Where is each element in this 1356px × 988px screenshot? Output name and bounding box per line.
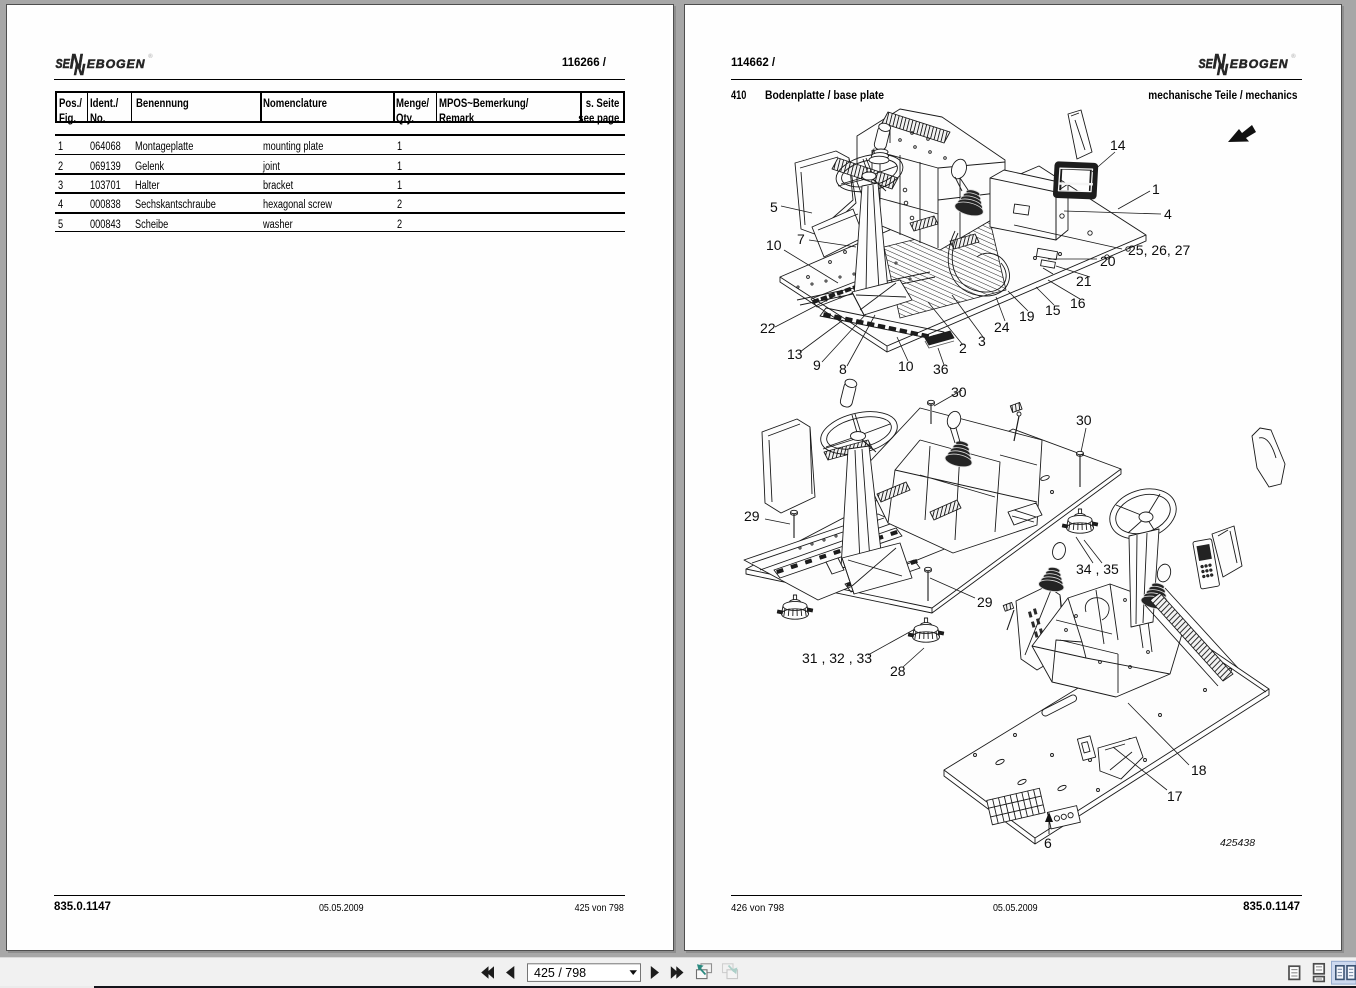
svg-text:28: 28 [890,663,906,679]
svg-text:24: 24 [994,319,1010,335]
svg-text:22: 22 [760,320,776,336]
svg-text:9: 9 [813,357,821,373]
svg-text:6: 6 [1044,835,1052,851]
svg-text:30: 30 [1076,412,1092,428]
svg-text:10: 10 [766,237,782,253]
svg-text:425438: 425438 [1220,837,1255,849]
svg-text:1: 1 [1152,181,1160,197]
svg-text:N: N [74,62,86,79]
svg-text:425 / 798: 425 / 798 [534,966,586,980]
svg-text:20: 20 [1100,253,1116,269]
svg-text:EBOGEN: EBOGEN [87,57,146,71]
svg-text:36: 36 [933,361,949,377]
svg-text:18: 18 [1191,762,1207,778]
svg-text:31 , 32 , 33: 31 , 32 , 33 [802,650,872,666]
svg-text:17: 17 [1167,788,1183,804]
svg-text:5: 5 [770,199,778,215]
svg-text:®: ® [148,53,153,60]
svg-text:2: 2 [959,340,967,356]
svg-text:14: 14 [1110,137,1126,153]
svg-text:SE: SE [56,57,71,71]
svg-text:10: 10 [898,358,914,374]
svg-text:13: 13 [787,346,803,362]
svg-text:29: 29 [744,508,760,524]
svg-text:8: 8 [839,361,847,377]
svg-text:7: 7 [797,231,805,247]
svg-text:29: 29 [977,594,993,610]
svg-text:34 , 35: 34 , 35 [1076,561,1119,577]
svg-text:4: 4 [1164,206,1172,222]
svg-text:25, 26, 27: 25, 26, 27 [1128,242,1190,258]
